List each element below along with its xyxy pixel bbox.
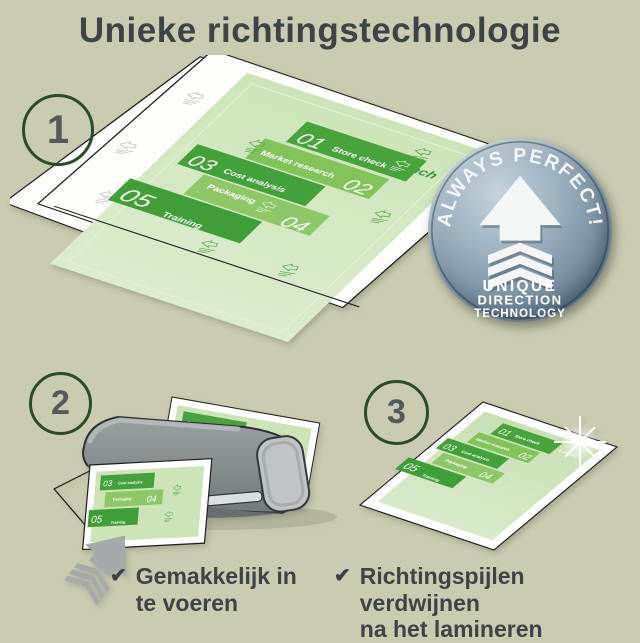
infographic: Unieke richtingstechnologie [0,0,640,640]
exit-bar-05-num: 05 [91,514,103,526]
badge-line-direction: DIRECTION [478,293,563,308]
caption-easy-feed: ✔ Gemakkelijk in te voeren [110,563,335,616]
step-1-number: 1 [22,94,94,166]
badge-line-technology: TECHNOLOGY [474,307,566,320]
page-title: Unieke richtingstechnologie [0,11,640,51]
step-2-number: 2 [29,372,92,435]
exit-bar-05-label: Training [111,520,127,525]
badge-art: ALWAYS PERFECT! UNIQUE DIRECTION TECHNOL… [428,138,612,322]
exit-bar-03-num: 03 [103,479,113,489]
caption-line: te voeren [136,590,238,616]
step-3-number: 3 [364,380,429,445]
direction-arrow-icon [479,176,560,289]
check-icon: ✔ [110,563,127,590]
caption-line: Gemakkelijk in [136,563,297,589]
caption-arrows-disappear: ✔ Richtingspijlen verdwijnen na het lami… [334,563,634,643]
always-perfect-badge: ALWAYS PERFECT! UNIQUE DIRECTION TECHNOL… [428,138,612,322]
exit-bar-04-num: 04 [146,494,157,505]
exit-pouch: 03 Cost analysis Packaging 04 05 Trainin… [48,459,212,558]
caption-line: Richtingspijlen verdwijnen [360,563,525,616]
caption-line: na het lamineren [360,616,543,642]
caption-easy-feed-text: Gemakkelijk in te voeren [136,563,297,616]
check-icon: ✔ [334,563,351,590]
caption-arrows-disappear-text: Richtingspijlen verdwijnen na het lamine… [360,563,634,643]
